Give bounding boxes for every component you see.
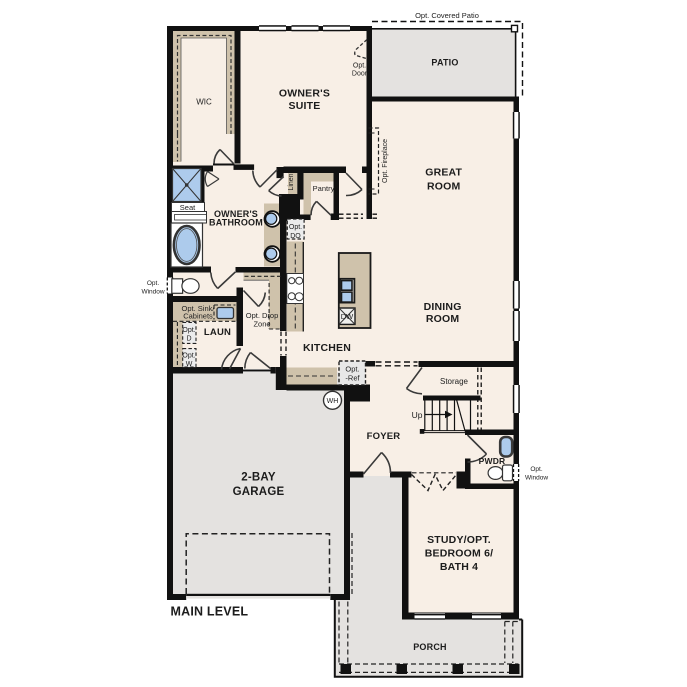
svg-text:Door: Door <box>352 70 368 77</box>
svg-text:Zone: Zone <box>253 320 270 329</box>
svg-text:SUITE: SUITE <box>289 100 321 112</box>
svg-text:Opt.: Opt. <box>345 365 359 374</box>
svg-text:Opt.: Opt. <box>289 224 302 231</box>
svg-text:Up: Up <box>412 410 423 420</box>
svg-text:Window: Window <box>141 289 164 296</box>
svg-text:Opt.: Opt. <box>147 280 159 287</box>
svg-text:Opt. Covered Patio: Opt. Covered Patio <box>415 11 479 20</box>
svg-text:WH: WH <box>327 398 339 405</box>
svg-text:Window: Window <box>525 475 548 482</box>
svg-text:Opt.: Opt. <box>182 327 195 334</box>
svg-text:ROOM: ROOM <box>426 313 460 325</box>
svg-text:Cabinets: Cabinets <box>183 311 213 320</box>
svg-text:BEDROOM 6/: BEDROOM 6/ <box>425 548 494 560</box>
svg-text:MAIN LEVEL: MAIN LEVEL <box>171 605 249 619</box>
svg-text:KITCHEN: KITCHEN <box>303 342 351 354</box>
svg-text:Opt.: Opt. <box>182 353 195 360</box>
svg-text:BATHROOM: BATHROOM <box>209 218 263 228</box>
svg-text:LAUN: LAUN <box>204 327 231 338</box>
svg-text:Opt.: Opt. <box>353 62 366 69</box>
svg-text:WIC: WIC <box>196 98 212 107</box>
svg-text:Linen: Linen <box>288 173 295 190</box>
svg-text:FOYER: FOYER <box>367 431 401 442</box>
svg-text:Storage: Storage <box>440 377 469 386</box>
svg-text:DW: DW <box>341 312 354 321</box>
svg-text:2-BAY: 2-BAY <box>241 472 276 484</box>
svg-text:GREAT: GREAT <box>425 167 462 179</box>
svg-text:OWNER'S: OWNER'S <box>279 88 330 100</box>
svg-text:Opt. Fireplace: Opt. Fireplace <box>382 139 389 183</box>
svg-text:Pantry: Pantry <box>313 184 335 193</box>
svg-text:Seat: Seat <box>180 203 196 212</box>
svg-text:STUDY/OPT.: STUDY/OPT. <box>427 534 491 546</box>
svg-text:DINING: DINING <box>424 301 462 313</box>
svg-text:-Ref: -Ref <box>345 374 360 383</box>
svg-text:PATIO: PATIO <box>431 58 458 68</box>
svg-text:DO: DO <box>290 233 301 240</box>
svg-text:W: W <box>186 361 193 368</box>
svg-text:BATH 4: BATH 4 <box>440 561 478 573</box>
svg-text:PORCH: PORCH <box>413 642 447 652</box>
svg-text:Opt.: Opt. <box>530 466 542 473</box>
svg-text:GARAGE: GARAGE <box>233 486 285 498</box>
svg-text:D: D <box>186 336 191 343</box>
svg-text:ROOM: ROOM <box>427 181 461 193</box>
svg-text:PWDR: PWDR <box>479 456 506 466</box>
